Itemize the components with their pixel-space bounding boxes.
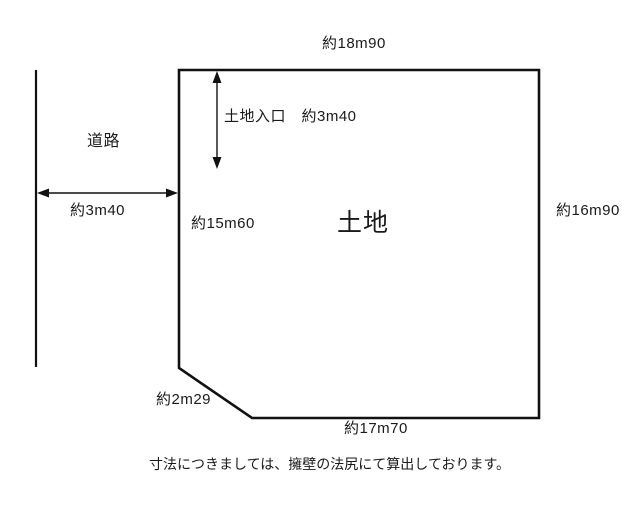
land-label: 土地 [337, 208, 389, 238]
arrow-left-icon [37, 189, 49, 198]
arrow-up-icon [213, 71, 222, 83]
footnote-text: 寸法につきましては、擁壁の法尻にて算出しております。 [149, 456, 510, 473]
entrance-depth-arrow [213, 71, 222, 169]
road-width-dimension: 約3m40 [70, 202, 125, 220]
corner-cut-dimension: 約2m29 [156, 391, 211, 409]
road-label: 道路 [87, 132, 120, 151]
arrow-right-icon [166, 189, 178, 198]
arrow-down-icon [213, 157, 222, 169]
top-side-dimension: 約18m90 [322, 35, 386, 53]
land-plot-diagram: 約18m90 土地入口 約3m40 道路 約3m40 約15m60 土地 約16… [0, 0, 640, 513]
right-side-dimension: 約16m90 [556, 202, 620, 220]
diagram-shapes [0, 0, 640, 513]
entrance-dimension: 土地入口 約3m40 [224, 108, 357, 126]
bottom-side-dimension: 約17m70 [344, 420, 408, 438]
road-width-arrow [37, 189, 178, 198]
left-side-dimension: 約15m60 [191, 215, 255, 233]
